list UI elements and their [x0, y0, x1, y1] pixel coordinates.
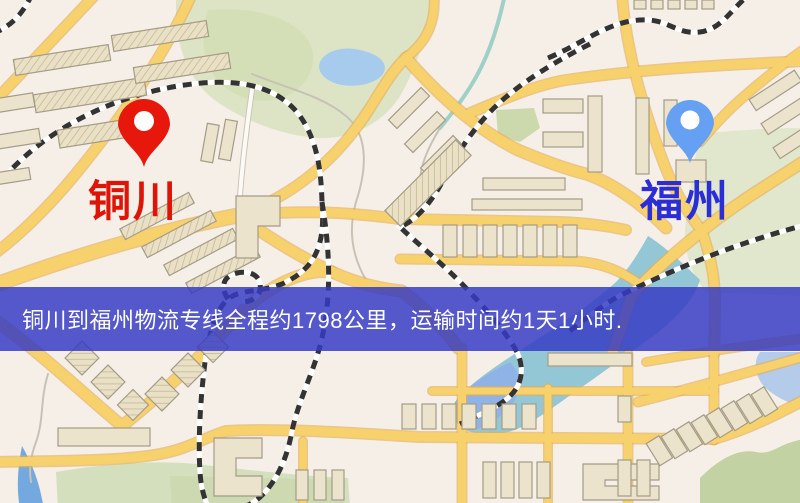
- map-canvas: 铜川 福州: [0, 0, 800, 503]
- origin-label: 铜川: [88, 178, 178, 226]
- route-info-banner: 铜川到福州物流专线全程约1798公里，运输时间约1天1小时.: [0, 287, 800, 351]
- map-screenshot: 铜川 福州 铜川到福州物流专线全程约1798公里，运输时间约1天1小时.: [0, 0, 800, 503]
- destination-label: 福州: [639, 178, 730, 226]
- route-info-text: 铜川到福州物流专线全程约1798公里，运输时间约1天1小时.: [22, 303, 623, 335]
